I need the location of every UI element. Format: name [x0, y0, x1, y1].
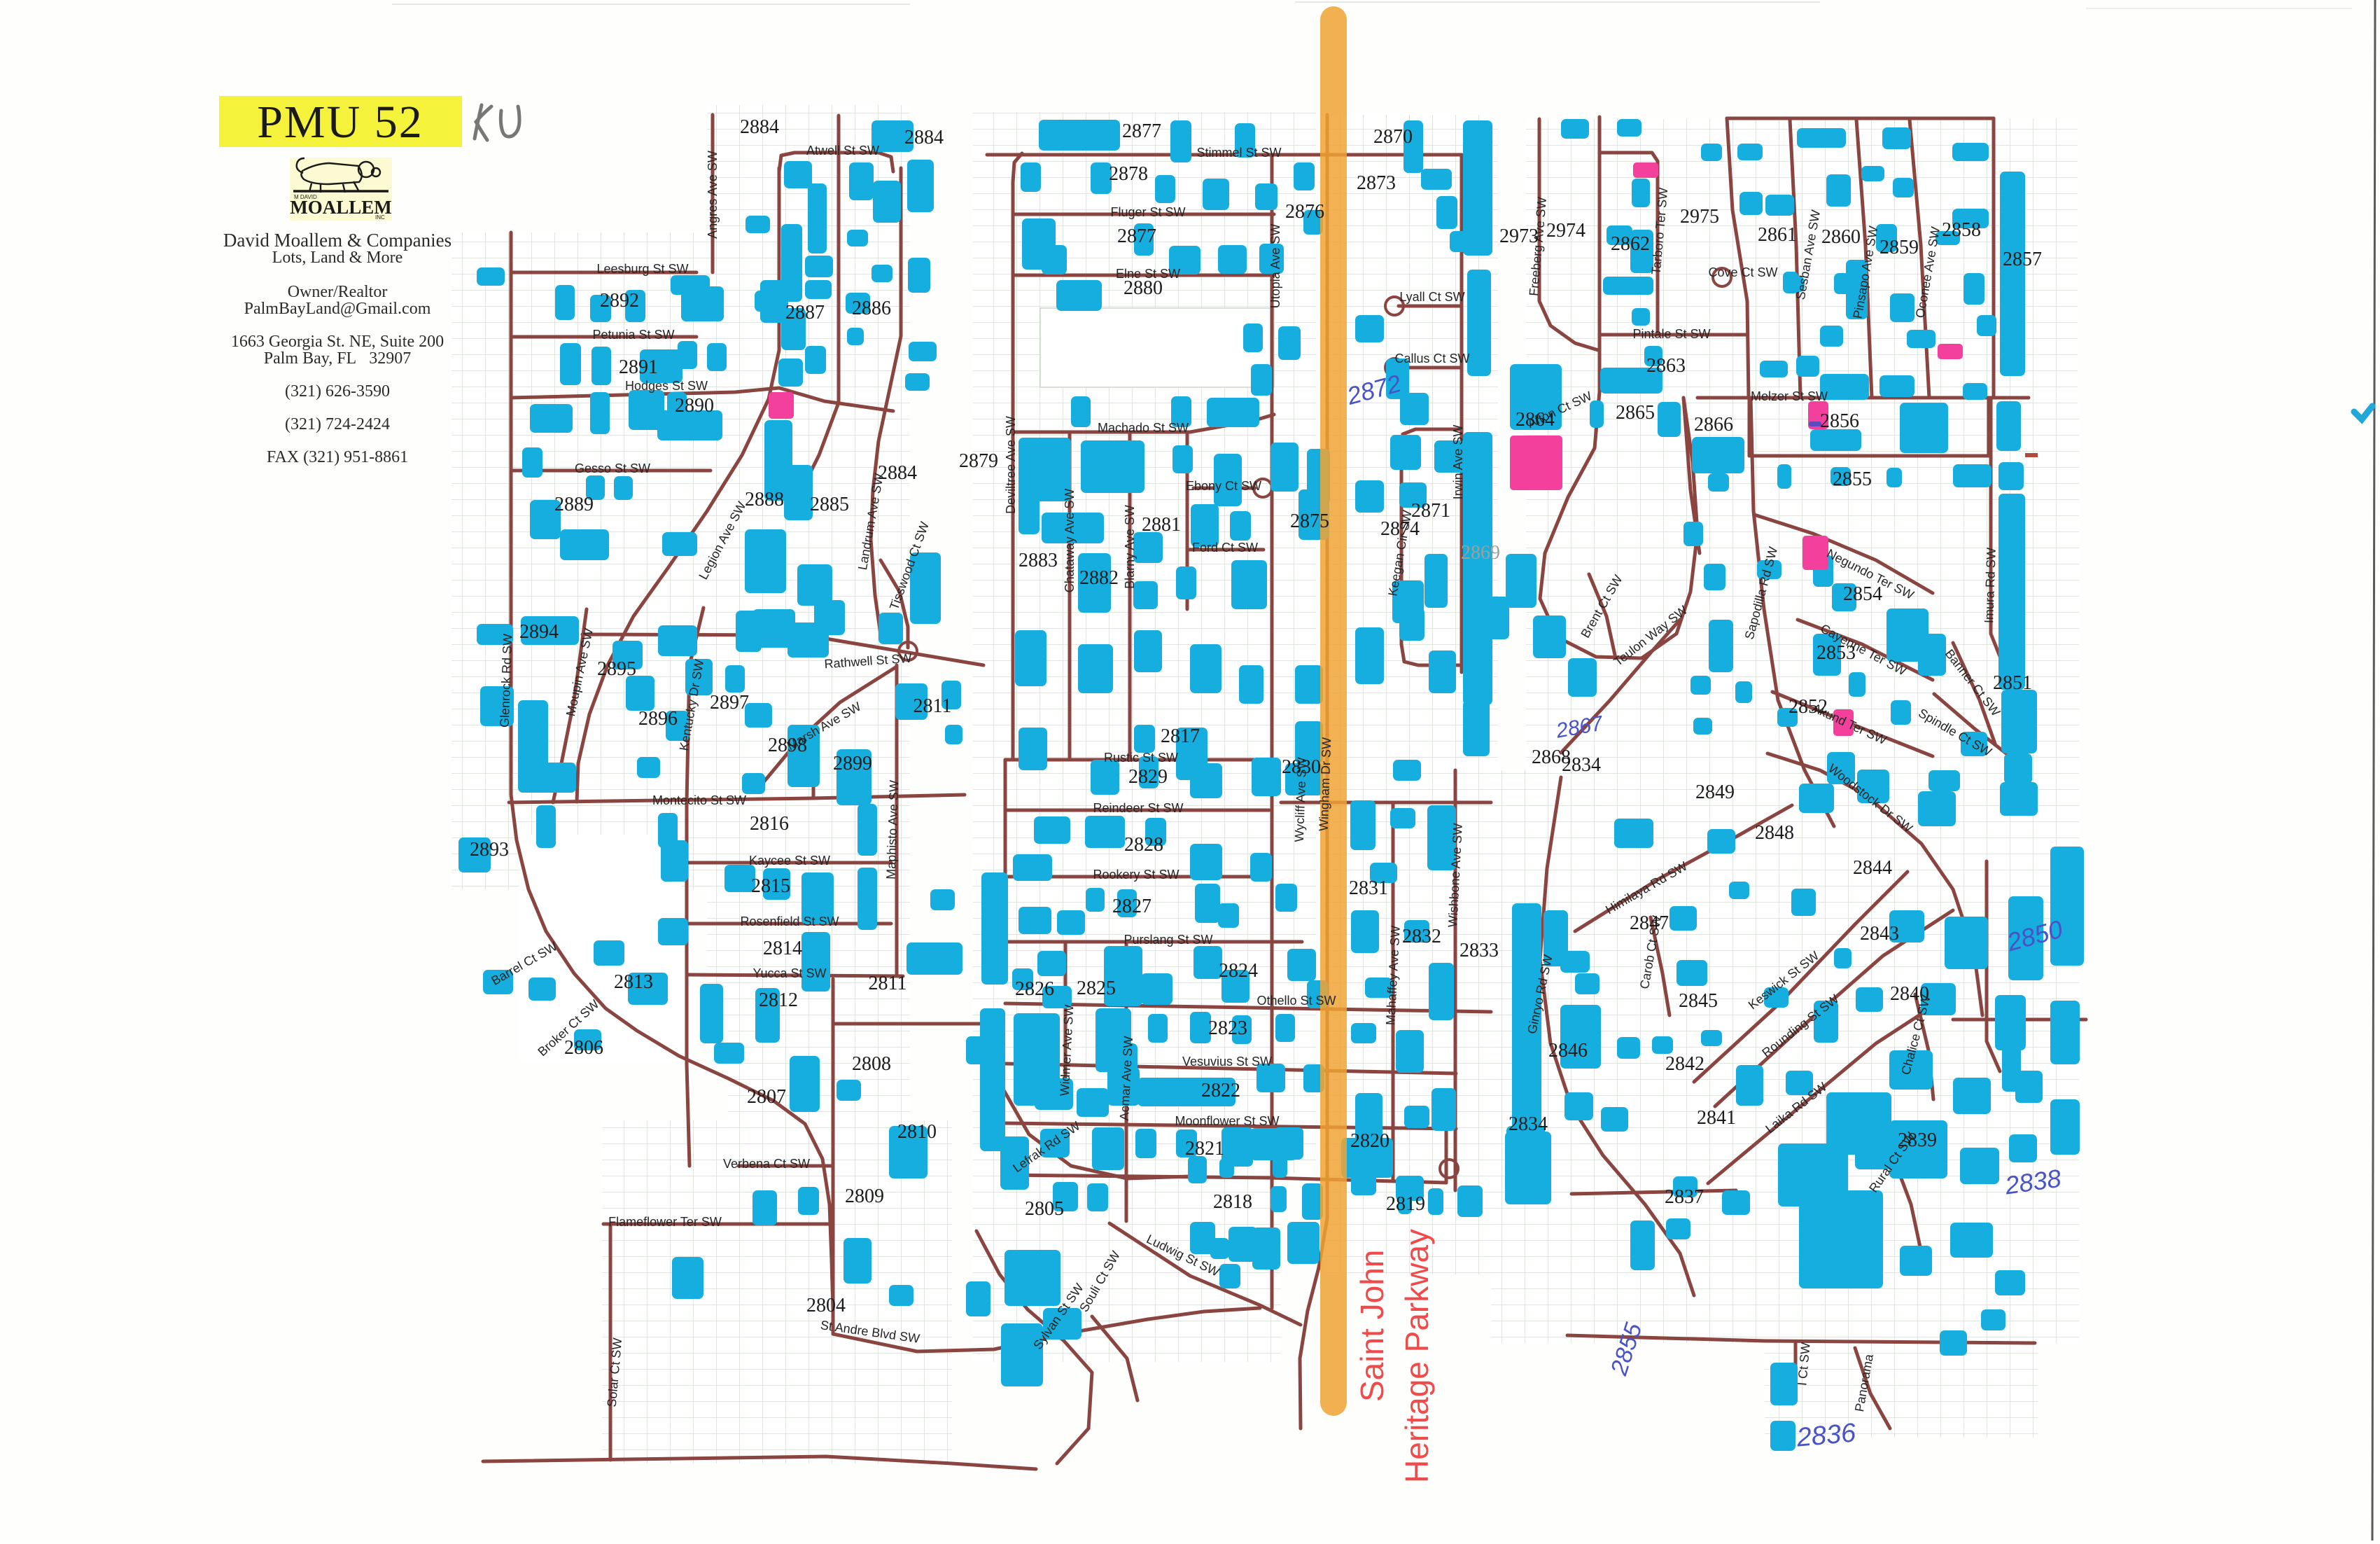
svg-text:2863: 2863 [1646, 355, 1686, 377]
svg-text:2843: 2843 [1860, 923, 1899, 945]
svg-text:Lyall Ct SW: Lyall Ct SW [1399, 290, 1464, 304]
svg-text:2879: 2879 [959, 450, 998, 472]
svg-text:2897: 2897 [710, 692, 749, 714]
svg-text:Moonflower St SW: Moonflower St SW [1175, 1114, 1279, 1128]
svg-text:2895: 2895 [597, 658, 636, 680]
svg-text:2810: 2810 [897, 1121, 937, 1143]
svg-text:2811: 2811 [913, 695, 952, 717]
svg-text:2818: 2818 [1213, 1191, 1252, 1213]
svg-text:2886: 2886 [852, 298, 891, 319]
svg-text:2860: 2860 [1821, 226, 1861, 248]
svg-text:Deviltree Ave SW: Deviltree Ave SW [1004, 416, 1018, 514]
svg-text:Imura Rd SW: Imura Rd SW [1982, 548, 1998, 624]
svg-text:2828: 2828 [1124, 834, 1163, 856]
svg-text:2848: 2848 [1755, 822, 1794, 844]
svg-text:2807: 2807 [747, 1086, 786, 1108]
svg-text:Stimmel St SW: Stimmel St SW [1196, 146, 1281, 160]
svg-text:Lots, Land & More: Lots, Land & More [272, 249, 403, 267]
svg-text:2825: 2825 [1077, 978, 1116, 999]
svg-text:2812: 2812 [759, 989, 798, 1011]
svg-text:1663 Georgia St. NE, Suite 200: 1663 Georgia St. NE, Suite 200 [231, 333, 444, 351]
svg-text:2821: 2821 [1185, 1138, 1224, 1160]
svg-text:Saint John: Saint John [1354, 1250, 1390, 1402]
svg-text:2890: 2890 [675, 395, 714, 417]
svg-text:Yucca St SW: Yucca St SW [752, 966, 826, 980]
svg-text:Callus Ct SW: Callus Ct SW [1394, 352, 1469, 366]
svg-text:2845: 2845 [1679, 990, 1718, 1012]
svg-text:2834: 2834 [1562, 754, 1601, 776]
svg-text:2823: 2823 [1208, 1017, 1247, 1039]
svg-text:2889: 2889 [554, 494, 594, 515]
svg-text:Reindeer St SW: Reindeer St SW [1093, 801, 1183, 815]
svg-text:Leesburg St SW: Leesburg St SW [596, 262, 688, 276]
svg-text:2898: 2898 [768, 735, 807, 756]
svg-text:2869: 2869 [1461, 542, 1500, 564]
svg-text:2811: 2811 [869, 973, 907, 994]
svg-text:2840: 2840 [1890, 983, 1929, 1005]
svg-text:2836: 2836 [1795, 1418, 1858, 1452]
svg-text:David Moallem & Companies: David Moallem & Companies [223, 230, 451, 251]
svg-text:2831: 2831 [1349, 877, 1388, 899]
svg-text:Melzer St SW: Melzer St SW [1751, 389, 1828, 403]
svg-text:Ford Ct SW: Ford Ct SW [1192, 541, 1258, 555]
svg-text:Rookery St SW: Rookery St SW [1093, 868, 1179, 882]
svg-text:2884: 2884 [878, 462, 917, 484]
svg-text:2859: 2859 [1879, 237, 1919, 258]
svg-text:2827: 2827 [1112, 896, 1151, 917]
svg-text:2882: 2882 [1079, 567, 1119, 589]
svg-text:2893: 2893 [470, 839, 509, 861]
svg-text:2833: 2833 [1459, 940, 1499, 961]
svg-text:2883: 2883 [1018, 550, 1058, 571]
svg-text:Vesuvius St SW: Vesuvius St SW [1182, 1055, 1272, 1069]
svg-text:2856: 2856 [1820, 410, 1859, 432]
svg-text:2896: 2896 [638, 708, 678, 730]
svg-text:PalmBayLand@Gmail.com: PalmBayLand@Gmail.com [244, 300, 431, 318]
svg-text:2834: 2834 [1508, 1113, 1548, 1135]
svg-text:2851: 2851 [1993, 672, 2032, 694]
svg-text:2892: 2892 [600, 290, 639, 312]
svg-text:Ebony Ct SW: Ebony Ct SW [1186, 479, 1261, 493]
svg-text:2888: 2888 [745, 489, 784, 510]
svg-text:Kaycee St SW: Kaycee St SW [749, 854, 830, 868]
svg-text:2871: 2871 [1411, 500, 1450, 522]
svg-text:PMU 52: PMU 52 [257, 97, 423, 148]
svg-text:2839: 2839 [1898, 1129, 1937, 1151]
svg-text:2830: 2830 [1282, 756, 1321, 778]
svg-text:2837: 2837 [1665, 1186, 1704, 1208]
svg-text:2809: 2809 [845, 1185, 884, 1207]
svg-text:INC: INC [375, 214, 385, 221]
svg-text:FAX (321) 951-8861: FAX (321) 951-8861 [267, 448, 408, 466]
svg-text:2864: 2864 [1515, 409, 1555, 431]
svg-text:2817: 2817 [1161, 725, 1200, 747]
svg-text:(321) 724-2424: (321) 724-2424 [285, 415, 390, 433]
svg-text:2819: 2819 [1386, 1193, 1425, 1215]
svg-text:2877: 2877 [1117, 225, 1156, 247]
svg-text:Purslang St SW: Purslang St SW [1123, 933, 1212, 947]
svg-text:2847: 2847 [1630, 912, 1669, 934]
svg-text:2804: 2804 [806, 1295, 846, 1316]
svg-text:Atwell St SW: Atwell St SW [806, 144, 879, 158]
svg-text:(321) 626-3590: (321) 626-3590 [285, 382, 390, 401]
svg-text:Flameflower Ter SW: Flameflower Ter SW [608, 1215, 722, 1229]
svg-text:Rosenfield St SW: Rosenfield St SW [740, 914, 839, 929]
svg-text:2861: 2861 [1758, 224, 1797, 246]
svg-text:2862: 2862 [1611, 233, 1650, 255]
svg-text:Pintale St SW: Pintale St SW [1632, 327, 1710, 341]
svg-text:Montecito St SW: Montecito St SW [652, 793, 746, 807]
svg-text:Owner/Realtor: Owner/Realtor [288, 283, 388, 301]
svg-text:2885: 2885 [810, 494, 849, 515]
svg-text:2832: 2832 [1402, 926, 1441, 947]
svg-text:Irwin Ave SW: Irwin Ave SW [1451, 425, 1465, 500]
svg-text:2822: 2822 [1201, 1080, 1240, 1101]
svg-text:Petunia St SW: Petunia St SW [592, 328, 674, 342]
svg-text:Utopia Ave SW: Utopia Ave SW [1268, 224, 1282, 309]
svg-text:Machado St SW: Machado St SW [1098, 421, 1189, 435]
svg-text:Chataway Ave SW: Chataway Ave SW [1063, 489, 1077, 593]
svg-text:Fluger St SW: Fluger St SW [1110, 205, 1185, 219]
svg-text:2870: 2870 [1373, 126, 1413, 148]
svg-text:2974: 2974 [1546, 220, 1585, 242]
svg-text:2866: 2866 [1694, 414, 1733, 436]
svg-text:2891: 2891 [619, 356, 658, 378]
svg-text:2855: 2855 [1833, 468, 1872, 490]
svg-text:Gesso St SW: Gesso St SW [575, 461, 650, 475]
svg-text:2806: 2806 [564, 1037, 603, 1059]
svg-text:2841: 2841 [1697, 1107, 1736, 1129]
svg-text:Blarny Ave SW: Blarny Ave SW [1123, 505, 1137, 589]
svg-text:2853: 2853 [1816, 642, 1856, 664]
svg-text:2857: 2857 [2003, 249, 2042, 270]
svg-text:2881: 2881 [1142, 514, 1181, 536]
svg-text:2813: 2813 [614, 971, 653, 993]
svg-text:2829: 2829 [1128, 766, 1168, 788]
svg-text:2824: 2824 [1219, 960, 1258, 982]
svg-text:2894: 2894 [519, 621, 559, 643]
svg-text:Heritage Parkway: Heritage Parkway [1399, 1229, 1435, 1483]
svg-text:Angres Ave SW: Angres Ave SW [706, 151, 720, 239]
svg-text:2887: 2887 [785, 302, 825, 324]
svg-text:2876: 2876 [1285, 201, 1324, 223]
svg-text:2846: 2846 [1548, 1040, 1588, 1062]
svg-text:2816: 2816 [750, 813, 789, 835]
svg-text:2975: 2975 [1680, 206, 1719, 228]
svg-text:Hodges St SW: Hodges St SW [625, 379, 708, 393]
svg-text:Verbena Ct SW: Verbena Ct SW [723, 1157, 810, 1171]
svg-text:2820: 2820 [1350, 1130, 1389, 1152]
svg-text:2873: 2873 [1357, 172, 1396, 194]
svg-text:Palm Bay, FL 32907: Palm Bay, FL 32907 [264, 349, 411, 368]
svg-text:2852: 2852 [1788, 696, 1828, 718]
svg-text:Cove Ct SW: Cove Ct SW [1708, 265, 1777, 279]
svg-text:2854: 2854 [1843, 583, 1882, 605]
svg-text:2844: 2844 [1853, 857, 1892, 879]
svg-text:2858: 2858 [1942, 219, 1981, 241]
svg-text:2808: 2808 [852, 1053, 891, 1075]
svg-text:2875: 2875 [1290, 510, 1329, 532]
svg-text:2880: 2880 [1123, 277, 1163, 299]
svg-text:2842: 2842 [1665, 1053, 1704, 1075]
svg-text:2899: 2899 [833, 753, 872, 774]
svg-text:Rustic St SW: Rustic St SW [1104, 751, 1178, 765]
svg-text:2884: 2884 [740, 116, 779, 138]
svg-text:Othello St SW: Othello St SW [1256, 994, 1336, 1008]
svg-text:2815: 2815 [751, 875, 790, 897]
svg-text:2878: 2878 [1109, 163, 1148, 185]
svg-text:2814: 2814 [763, 938, 802, 959]
svg-text:2849: 2849 [1695, 781, 1735, 803]
svg-text:2973: 2973 [1499, 225, 1539, 247]
svg-text:2884: 2884 [904, 127, 944, 148]
svg-text:2805: 2805 [1025, 1198, 1064, 1220]
svg-text:2877: 2877 [1122, 120, 1161, 142]
svg-text:2826: 2826 [1015, 978, 1054, 1000]
svg-text:2865: 2865 [1616, 402, 1655, 424]
